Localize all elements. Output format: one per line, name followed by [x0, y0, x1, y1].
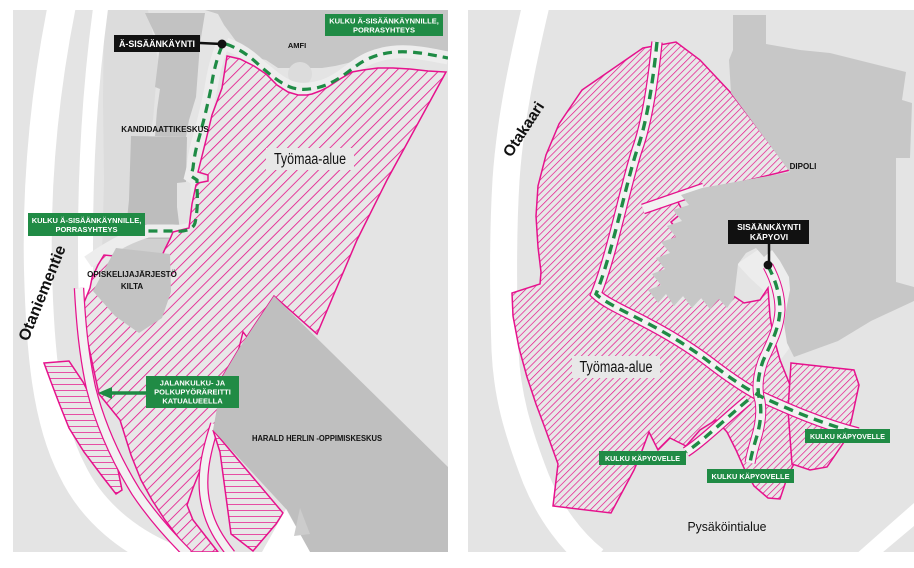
svg-text:HARALD HERLIN -OPPIMISKESKUS: HARALD HERLIN -OPPIMISKESKUS [252, 434, 383, 443]
svg-text:POLKUPYÖRÄREITTI: POLKUPYÖRÄREITTI [154, 388, 231, 397]
svg-text:KATUALUEELLA: KATUALUEELLA [162, 397, 223, 406]
svg-text:KULKU Ä-SISÄÄNKÄYNNILLE,: KULKU Ä-SISÄÄNKÄYNNILLE, [32, 216, 142, 225]
svg-text:PORRASYHTEYS: PORRASYHTEYS [55, 225, 117, 234]
svg-text:KULKU KÄPYOVELLE: KULKU KÄPYOVELLE [605, 454, 680, 463]
svg-text:Pysäköintialue: Pysäköintialue [688, 519, 767, 534]
svg-text:Työmaa-alue: Työmaa-alue [274, 151, 346, 168]
svg-text:OPISKELIJAJÄRJESTÖ: OPISKELIJAJÄRJESTÖ [87, 270, 177, 279]
svg-text:KULKU KÄPYOVELLE: KULKU KÄPYOVELLE [810, 432, 885, 441]
svg-text:KULKU KÄPYOVELLE: KULKU KÄPYOVELLE [712, 472, 790, 481]
svg-text:KANDIDAATTIKESKUS: KANDIDAATTIKESKUS [121, 125, 209, 134]
svg-text:PORRASYHTEYS: PORRASYHTEYS [353, 26, 415, 35]
svg-text:KILTA: KILTA [121, 282, 144, 291]
svg-text:SISÄÄNKÄYNTI: SISÄÄNKÄYNTI [737, 222, 801, 232]
svg-text:KÄPYOVI: KÄPYOVI [750, 232, 788, 242]
svg-text:AMFI: AMFI [288, 41, 306, 50]
svg-text:Ä-SISÄÄNKÄYNTI: Ä-SISÄÄNKÄYNTI [119, 39, 195, 50]
svg-text:DIPOLI: DIPOLI [790, 162, 817, 171]
svg-text:JALANKULKU- JA: JALANKULKU- JA [160, 379, 226, 388]
svg-text:KULKU Ä-SISÄÄNKÄYNNILLE,: KULKU Ä-SISÄÄNKÄYNNILLE, [329, 17, 439, 26]
svg-text:Työmaa-alue: Työmaa-alue [580, 359, 653, 376]
